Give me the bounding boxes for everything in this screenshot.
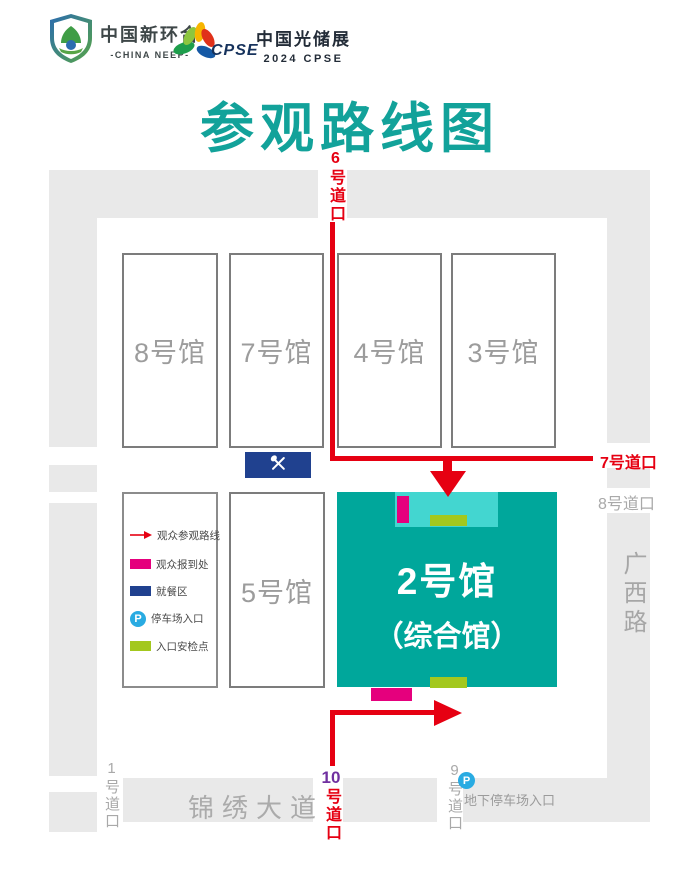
security-marker-top <box>430 515 467 526</box>
legend-security-label: 入口安检点 <box>156 639 209 654</box>
legend-item-route: 观众参观路线 <box>130 527 216 545</box>
route-map-poster: 中国新环合 -CHINA NEEP- CPSE 中国光储展 2024 CPSE … <box>0 0 700 870</box>
road-right-1 <box>607 218 650 443</box>
underground-parking-label: 地下停车场入口 <box>464 790 555 809</box>
road-bottom-middle <box>343 778 437 822</box>
legend-item-parking: P 停车场入口 <box>130 611 216 627</box>
legend-registration-label: 观众报到处 <box>156 557 209 572</box>
route-exit-arrow-right-icon <box>434 700 462 726</box>
legend-route-label: 观众参观路线 <box>157 528 220 543</box>
jinxiu-avenue-label: 锦绣大道 <box>188 788 324 825</box>
security-swatch-icon <box>130 641 151 651</box>
hall-2-label: 2号馆 <box>397 551 498 605</box>
legend-item-dining: 就餐区 <box>130 584 216 599</box>
gate1-label: 1号道口 <box>101 760 122 830</box>
fork-knife-icon <box>268 453 288 478</box>
route-line-gate10-vertical <box>330 712 335 766</box>
brand2-cn: 中国光储展 <box>256 25 351 50</box>
china-neep-shield-icon <box>46 12 96 69</box>
parking-icon: P <box>130 611 146 627</box>
hall-5: 5号馆 <box>229 492 325 688</box>
hall-3: 3号馆 <box>451 253 556 448</box>
route-line-gate10-horizontal <box>330 710 438 715</box>
hall-4-label: 4号馆 <box>353 331 425 370</box>
registration-swatch-icon <box>130 559 151 569</box>
gate7-label: 7号道口 <box>600 449 657 473</box>
gate8-label: 8号道口 <box>598 490 655 514</box>
hall-8: 8号馆 <box>122 253 218 448</box>
hall-3-label: 3号馆 <box>467 331 539 370</box>
hall-5-label: 5号馆 <box>241 571 313 610</box>
route-line-gate6-vertical <box>330 222 335 459</box>
hall-4: 4号馆 <box>337 253 442 448</box>
gate6-label: 6号道口 <box>323 150 347 223</box>
page-title: 参观路线图 <box>0 84 700 163</box>
legend-box: 观众参观路线 观众报到处 就餐区 P 停车场入口 入口安检点 <box>122 492 218 688</box>
brand2-sub: 2024 CPSE <box>256 53 351 65</box>
security-marker-bottom <box>430 677 467 688</box>
road-left-1 <box>49 170 97 447</box>
road-left-4 <box>49 792 97 832</box>
road-left-2 <box>49 465 97 492</box>
hall-8-label: 8号馆 <box>134 331 206 370</box>
dining-swatch-icon <box>130 586 151 596</box>
cpse-wordmark: 中国光储展 2024 CPSE <box>256 25 351 65</box>
legend-dining-label: 就餐区 <box>156 584 188 599</box>
legend-item-registration: 观众报到处 <box>130 557 216 572</box>
route-arrow-icon <box>130 527 152 545</box>
cpse-acronym: CPSE <box>211 42 259 60</box>
road-top-right <box>347 170 650 218</box>
hall-7: 7号馆 <box>229 253 324 448</box>
registration-marker-top <box>397 496 409 523</box>
underground-parking-icon: P <box>458 772 475 789</box>
registration-marker-bottom <box>371 688 412 701</box>
hall-2-sublabel: （综合馆） <box>374 613 519 655</box>
gate10-suffix: 号道口 <box>319 788 343 842</box>
legend-parking-label: 停车场入口 <box>151 611 204 626</box>
gate10-label: 10 号道口 <box>316 768 346 842</box>
road-left-3 <box>49 503 97 776</box>
route-entry-arrow-down-icon <box>430 471 466 497</box>
hall-7-label: 7号馆 <box>240 331 312 370</box>
guangxi-road-label: 广西路 <box>615 551 650 638</box>
route-line-gate7-horizontal <box>330 456 593 461</box>
gate10-number: 10 <box>322 768 341 788</box>
dining-area-block <box>245 452 311 478</box>
legend-item-security: 入口安检点 <box>130 639 216 654</box>
